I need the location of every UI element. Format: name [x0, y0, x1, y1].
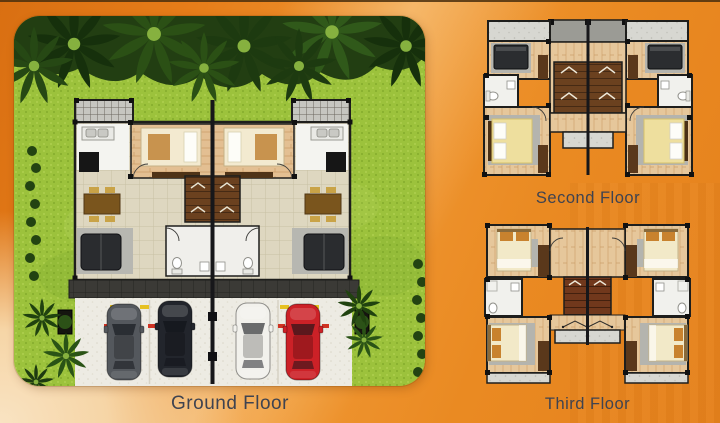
- dining-table: [84, 194, 120, 214]
- party-wall: [587, 19, 590, 175]
- second-floor-plan: [482, 15, 694, 181]
- second-floor-unit-right: [588, 21, 694, 177]
- third-floor-label: Third Floor: [483, 395, 692, 414]
- landing: [550, 315, 588, 330]
- lower-ledge: [487, 373, 550, 383]
- entry-canopy: [555, 330, 588, 343]
- ground-floor-plan: [14, 16, 425, 386]
- entry-canopy: [563, 132, 588, 148]
- wardrobe: [538, 55, 548, 79]
- stairs: [554, 62, 588, 113]
- party-wall: [586, 227, 589, 345]
- stairs: [564, 277, 588, 315]
- third-floor-unit-left: [485, 223, 588, 383]
- kitchen-sink: [86, 129, 96, 137]
- background-top-edge: [0, 0, 720, 2]
- second-floor-unit-left: [482, 21, 588, 177]
- car-3: [233, 303, 273, 379]
- car-1: [104, 304, 144, 380]
- second-floor-label: Second Floor: [482, 189, 694, 208]
- party-wall: [211, 100, 215, 384]
- ground-floor-card: [14, 16, 425, 386]
- toilet: [173, 258, 182, 269]
- stove: [79, 152, 99, 172]
- brochure-canvas: Ground Floor: [0, 0, 720, 423]
- hallway: [550, 229, 588, 277]
- car-2: [155, 301, 195, 377]
- trellis-patio: [75, 100, 133, 122]
- third-floor-unit-right: [587, 223, 690, 383]
- bath-sink: [511, 283, 519, 291]
- bath-sink: [200, 262, 209, 271]
- toilet: [489, 303, 497, 313]
- bath-sink: [507, 81, 515, 89]
- ground-floor-label: Ground Floor: [30, 393, 430, 415]
- wardrobe: [538, 245, 549, 277]
- third-floor-plan: [483, 223, 692, 385]
- car-4: [283, 304, 323, 380]
- balcony-ledge: [488, 21, 550, 41]
